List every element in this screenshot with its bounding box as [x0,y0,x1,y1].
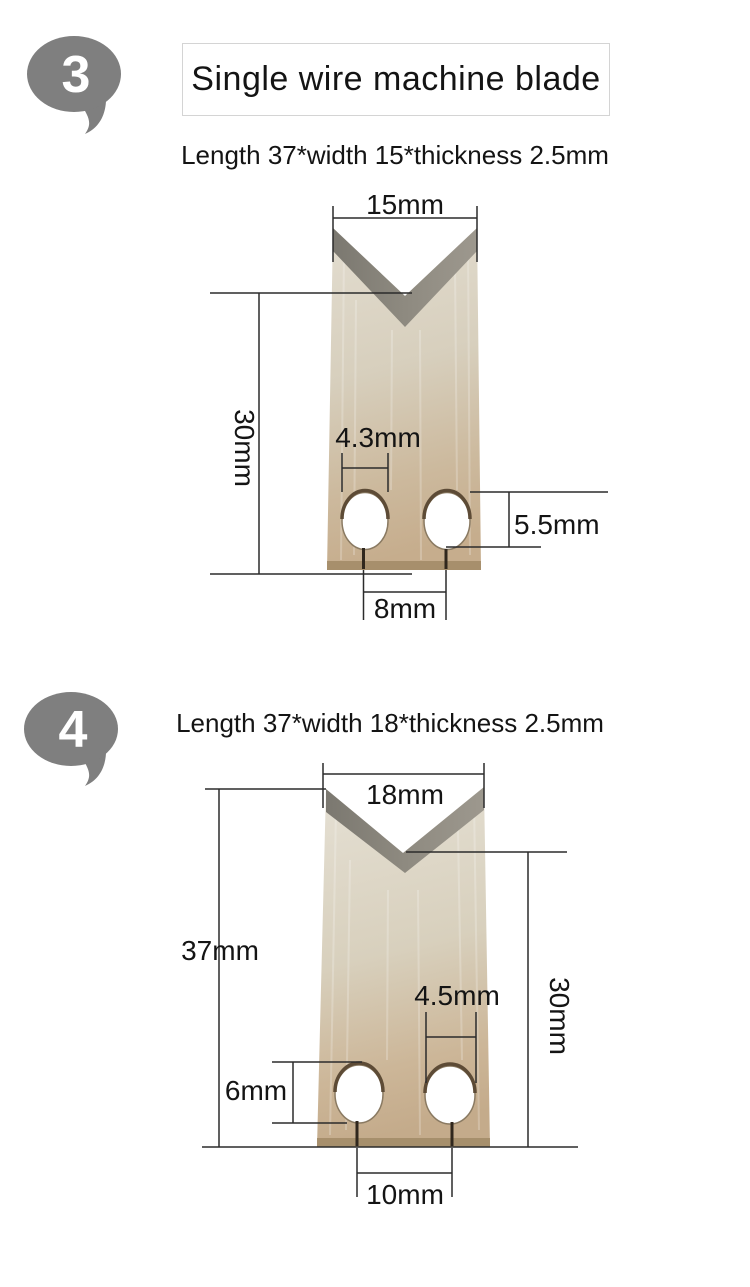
blade2-edge-height-label: 30mm [544,977,575,1055]
blade1-top-width-label: 15mm [366,189,444,220]
blade1-edge-height-label: 30mm [229,409,260,487]
step-badge-4: 4 [24,692,118,786]
blade1-spec-text: Length 37*width 15*thickness 2.5mm [40,140,750,170]
step-badge-3-number: 3 [62,46,91,104]
blade2-top-width-label: 18mm [366,779,444,810]
step-badge-3: 3 [27,36,121,134]
blade2-slit-spacing-label: 10mm [366,1179,444,1210]
blade2-total-length-label: 37mm [181,935,259,966]
blade2-diagram: 18mm 37mm 4.5mm 30mm 6mm 10mm [181,763,578,1210]
product-title-box: Single wire machine blade [182,43,610,116]
blade1-hole-width-label: 4.3mm [335,422,421,453]
blade2-hole-height-label: 6mm [225,1075,287,1106]
blade1-slit-spacing-label: 8mm [374,593,436,624]
blade1-bottom-edge [327,561,481,570]
blade2-hole-width-label: 4.5mm [414,980,500,1011]
product-spec-page: 3 [0,0,750,1287]
blade2-bottom-edge [317,1138,490,1147]
product-title: Single wire machine blade [191,60,600,99]
blade1-hole-height-label: 5.5mm [514,509,600,540]
blade-diagrams-canvas: 3 [0,0,750,1287]
blade1-diagram: 15mm 30mm 4.3mm 5.5mm 8mm [210,189,608,624]
blade2-spec-text: Length 37*width 18*thickness 2.5mm [30,708,750,738]
